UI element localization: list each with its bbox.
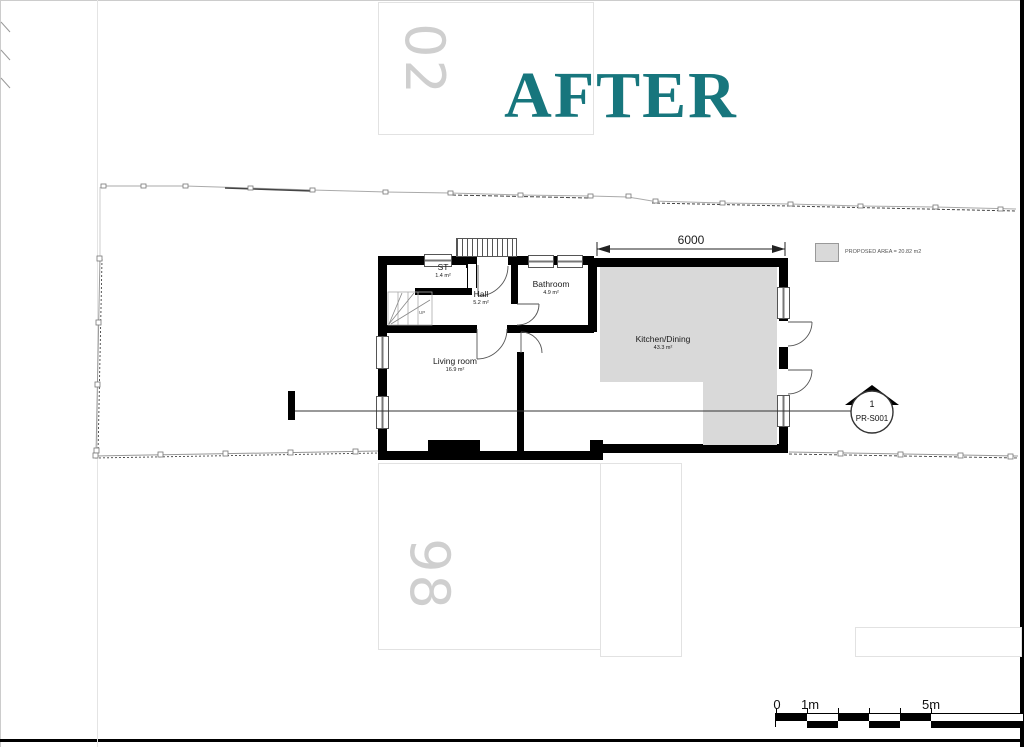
page-border-top	[0, 0, 1024, 1]
wall-top-kitchen	[593, 258, 788, 267]
section-marker-label: PR-S001	[856, 414, 888, 423]
page-title: AFTER	[504, 58, 738, 134]
st-door-leaf	[467, 264, 477, 288]
window-kitchen-1	[777, 287, 790, 319]
window-bathroom-2	[557, 255, 583, 268]
legend-swatch	[815, 243, 839, 262]
room-name: Bathroom	[533, 280, 570, 290]
fence-left	[94, 187, 102, 455]
bathroom-door-swing	[517, 304, 539, 325]
page-border-bottom	[0, 739, 1024, 742]
scale-bar	[775, 713, 1024, 727]
wall-bathroom-kitchen	[588, 258, 597, 332]
door-opening-hall-living	[477, 325, 507, 333]
entrance-steps	[456, 238, 517, 257]
window-kitchen-2	[777, 395, 790, 427]
stairs-up-label: UP	[419, 310, 425, 315]
house-number-top: 02	[393, 23, 456, 96]
dimension-6000-label: 6000	[678, 233, 705, 247]
room-label-living: Living room 16.9 m²	[433, 357, 477, 373]
property-boundary-line	[97, 0, 98, 747]
room-label-kitchen: Kitchen/Dining 43.3 m²	[636, 335, 691, 351]
fence-bottom-right	[789, 451, 1018, 459]
scale-bar-top-row	[776, 714, 1023, 721]
door-opening-bathroom	[511, 304, 518, 325]
legend-label: PROPOSED AREA = 20.82 m2	[845, 249, 921, 255]
room-name: Hall	[473, 290, 489, 300]
fireplace-block	[428, 440, 480, 451]
wall-bottom-left-block	[378, 451, 603, 460]
door-opening-front	[477, 256, 508, 265]
room-label-st: ST 1.4 m²	[435, 263, 451, 279]
proposed-area-fill-lower	[703, 382, 777, 445]
section-line-end-bar	[288, 391, 295, 420]
scale-label-1m: 1m	[801, 697, 819, 712]
kitchen-door-1-swing	[788, 322, 812, 346]
stairs	[388, 292, 432, 325]
room-area: 43.3 m²	[636, 345, 691, 351]
door-opening-kitchen-2	[779, 368, 788, 396]
room-area: 4.9 m²	[533, 290, 570, 296]
window-bathroom-1	[528, 255, 554, 268]
section-marker-number: 1	[869, 399, 874, 409]
fence-bottom-left	[93, 449, 378, 458]
room-area: 16.9 m²	[433, 367, 477, 373]
scale-label-5m: 5m	[922, 697, 940, 712]
room-name: Living room	[433, 357, 477, 367]
room-area: 5.2 m²	[473, 300, 489, 306]
hall-living-door-swing	[477, 329, 507, 359]
window-living-2	[376, 396, 389, 429]
room-label-hall: Hall 5.2 m²	[473, 290, 489, 306]
room-area: 1.4 m²	[435, 273, 451, 279]
section-marker-bubble	[851, 391, 893, 433]
scale-label-0: 0	[773, 697, 780, 712]
neighbor-building-bottom-right	[855, 627, 1022, 657]
house-number-bottom: 98	[398, 538, 461, 611]
neighbor-building-bottom-mid	[600, 463, 682, 657]
door-opening-kitchen-1	[779, 320, 788, 348]
wall-living-kitchen-divider	[517, 352, 524, 451]
wall-st-bottom	[415, 288, 472, 295]
page-edge-ticks	[1, 22, 10, 88]
room-name: Kitchen/Dining	[636, 335, 691, 345]
kitchen-door-2-swing	[788, 370, 812, 394]
wall-bathroom-left	[511, 256, 518, 304]
living-kitchen-door-swing	[521, 332, 542, 353]
window-living-1	[376, 336, 389, 369]
proposed-area-fill-upper	[600, 267, 777, 382]
room-name: ST	[435, 263, 451, 273]
scale-bar-bottom-row	[776, 721, 1023, 728]
page-border-left	[0, 0, 1, 747]
drawing-sheet: 02 98 AFTER	[0, 0, 1024, 747]
fence-top	[101, 184, 1016, 211]
wall-bottom-kitchen	[596, 444, 788, 453]
wall-junction-block	[590, 440, 603, 455]
room-label-bathroom: Bathroom 4.9 m²	[533, 280, 570, 296]
